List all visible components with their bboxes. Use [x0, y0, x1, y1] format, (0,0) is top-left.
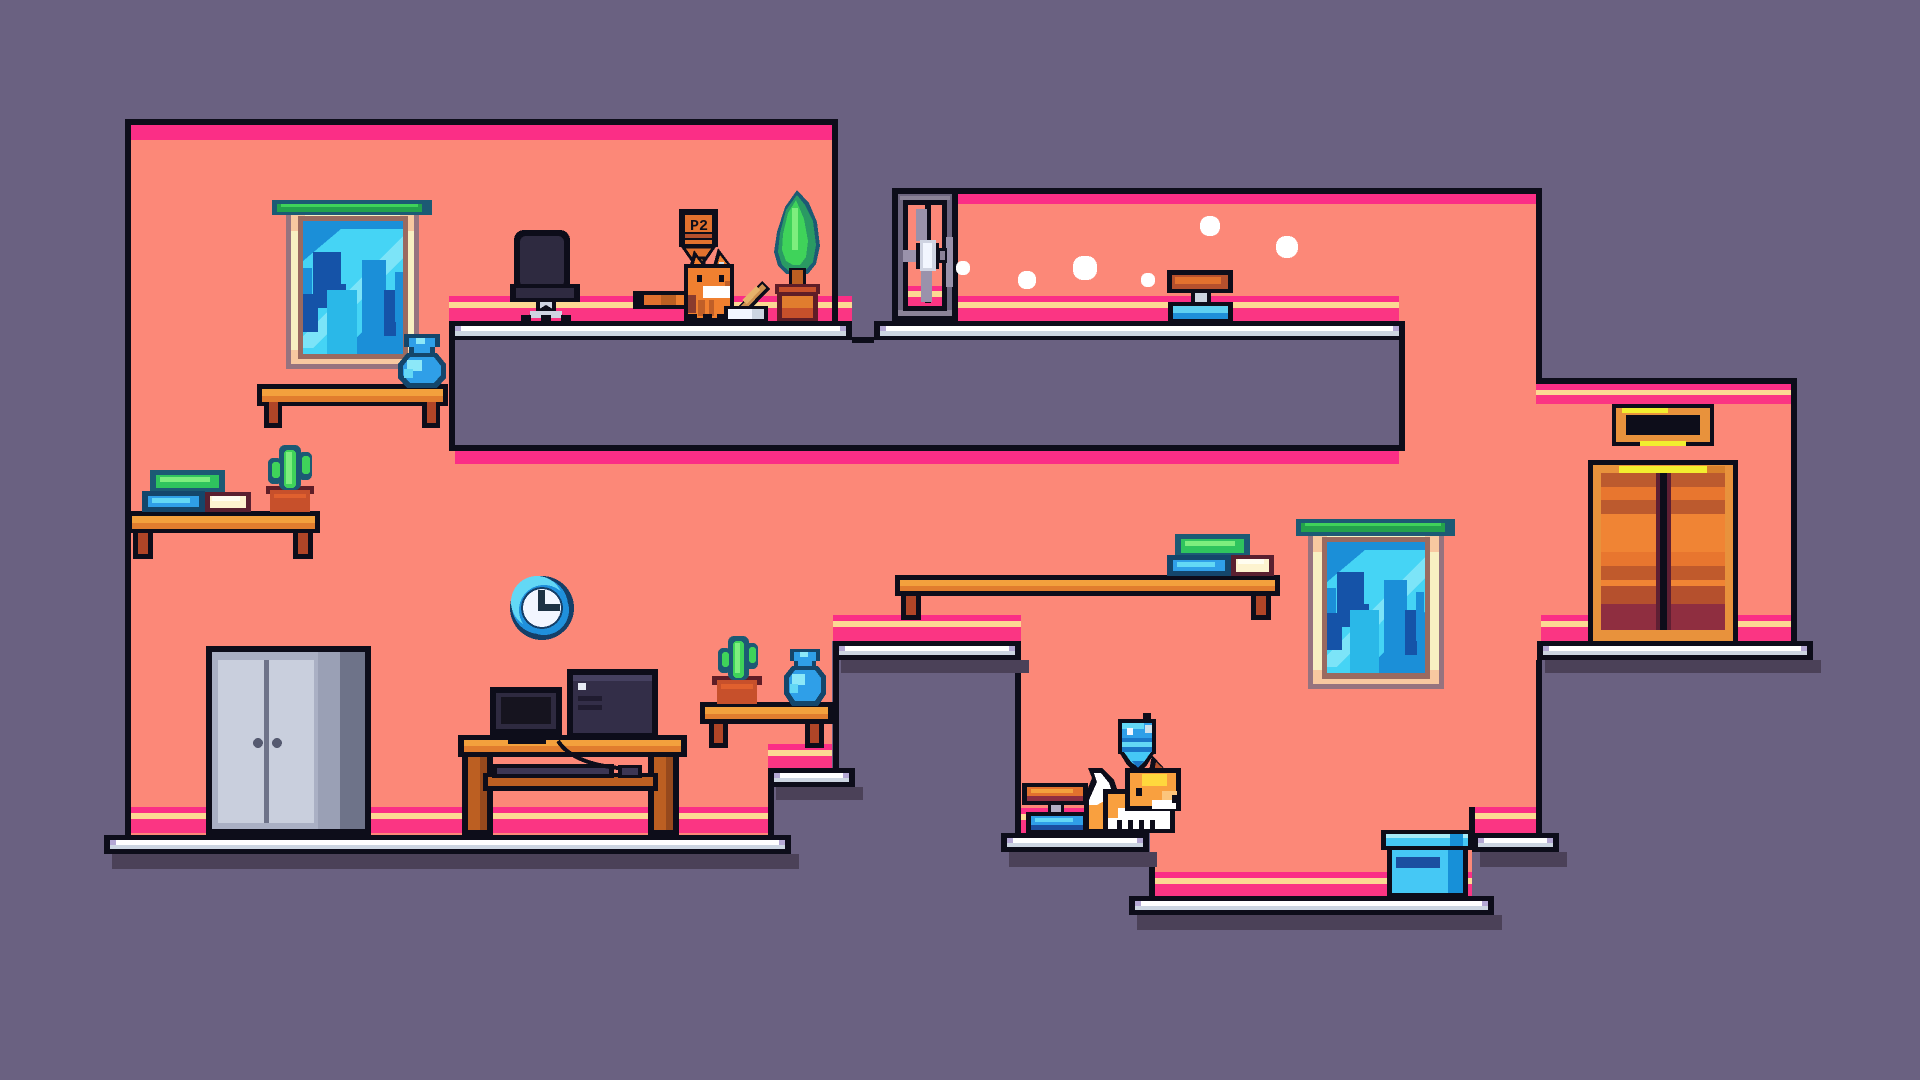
svg-text:P2: P2 — [690, 218, 708, 235]
